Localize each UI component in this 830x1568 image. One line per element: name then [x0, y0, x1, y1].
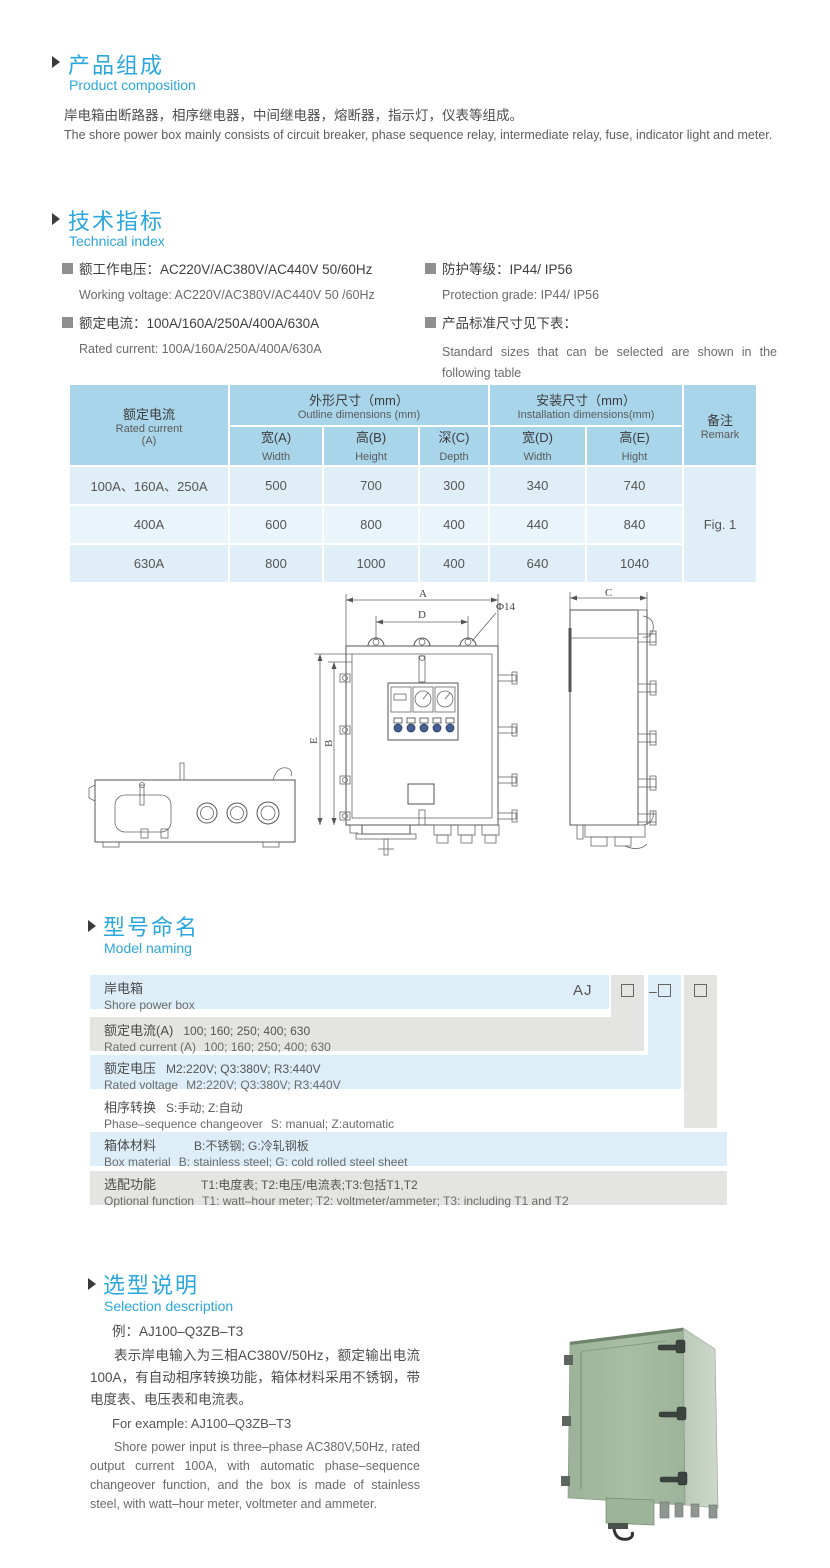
spec-cn-text: 额工作电压：AC220V/AC380V/AC440V 50/60Hz — [79, 258, 372, 278]
datasheet-page: 产品组成 Product composition 岸电箱由断路器，相序继电器，中… — [0, 0, 830, 1568]
selection-title-cn: 选型说明 — [103, 1268, 199, 1300]
spec-standard-sizes: 产品标准尺寸见下表： Standard sizes that can be se… — [425, 312, 777, 384]
table-row: 400A 600 800 400 440 840 — [69, 505, 757, 544]
table-subheader-height-b: 高(B)Height — [323, 426, 419, 466]
svg-text:D: D — [418, 609, 426, 621]
selection-example-cn: 例：AJ100–Q3ZB–T3 — [112, 1320, 243, 1340]
technical-title-cn: 技术指标 — [68, 204, 164, 236]
spec-en-text: Protection grade: IP44/ IP56 — [442, 288, 795, 302]
model-title-en: Model naming — [104, 940, 192, 956]
model-code-dash: – — [649, 983, 657, 999]
model-row-box-material: 箱体材料B:不锈钢; G:冷轧钢板 Box materialB: stainle… — [90, 1132, 727, 1166]
front-view-drawing: A D Φ14 E B — [300, 588, 590, 888]
spec-en-text: Standard sizes that can be selected are … — [442, 342, 777, 384]
table-header-remark: 备注 Remark — [683, 384, 757, 466]
model-naming-diagram: 岸电箱 Shore power box AJ – 额定电流(A)100; 160… — [90, 975, 727, 1205]
svg-text:B: B — [323, 740, 335, 747]
table-header-outline: 外形尺寸（mm） Outline dimensions (mm) — [229, 384, 489, 426]
composition-title-cn: 产品组成 — [68, 48, 164, 80]
table-row: 100A、160A、250A 500 700 300 340 740 Fig. … — [69, 466, 757, 505]
section-arrow-icon — [88, 1278, 96, 1290]
table-subheader-width-d: 宽(D)Width — [489, 426, 586, 466]
table-subheader-width-a: 宽(A)Width — [229, 426, 323, 466]
side-view-drawing: C — [555, 588, 715, 888]
svg-text:Φ14: Φ14 — [496, 601, 516, 613]
selection-title-en: Selection description — [104, 1298, 233, 1314]
remark-figure-cell: Fig. 1 — [683, 466, 757, 583]
model-title-cn: 型号命名 — [103, 910, 199, 942]
spec-rated-current: 额定电流：100A/160A/250A/400A/630A Rated curr… — [62, 312, 412, 356]
selection-body-en: Shore power input is three–phase AC380V,… — [90, 1438, 420, 1514]
composition-body-en: The shore power box mainly consists of c… — [64, 128, 794, 142]
product-photo — [548, 1292, 826, 1564]
model-row-phase-sequence: 相序转换S:手动; Z:自动 Phase–sequence changeover… — [90, 1094, 717, 1128]
model-code-box-3 — [694, 984, 707, 997]
section-arrow-icon — [52, 213, 60, 225]
section-arrow-icon — [88, 920, 96, 932]
spec-cn-text: 额定电流：100A/160A/250A/400A/630A — [79, 312, 319, 332]
technical-title-en: Technical index — [69, 233, 165, 249]
spec-cn-text: 产品标准尺寸见下表： — [442, 312, 577, 332]
square-bullet-icon — [62, 317, 73, 328]
square-bullet-icon — [425, 317, 436, 328]
table-subheader-height-e: 高(E)Hight — [586, 426, 683, 466]
table-header-rated-current: 额定电流 Rated current (A) — [69, 384, 229, 466]
table-row: 630A 800 1000 400 640 1040 — [69, 544, 757, 583]
table-subheader-depth-c: 深(C)Depth — [419, 426, 489, 466]
spec-working-voltage: 额工作电压：AC220V/AC380V/AC440V 50/60Hz Worki… — [62, 258, 412, 302]
square-bullet-icon — [62, 263, 73, 274]
spec-protection-grade: 防护等级：IP44/ IP56 Protection grade: IP44/ … — [425, 258, 795, 302]
model-row-optional-function: 选配功能T1:电度表; T2:电压/电流表;T3:包括T1,T2 Optiona… — [90, 1171, 727, 1205]
svg-text:A: A — [419, 588, 427, 600]
model-row-rated-current: 额定电流(A)100; 160; 250; 400; 630 Rated cur… — [90, 1017, 644, 1051]
spec-en-text: Rated current: 100A/160A/250A/400A/630A — [79, 342, 412, 356]
square-bullet-icon — [425, 263, 436, 274]
model-code-prefix: AJ — [573, 982, 593, 999]
selection-example-en: For example: AJ100–Q3ZB–T3 — [112, 1416, 291, 1431]
model-row-shore-power-box: 岸电箱 Shore power box — [90, 975, 609, 1009]
dimensions-table: 额定电流 Rated current (A) 外形尺寸（mm） Outline … — [68, 383, 758, 584]
model-code-box-1 — [621, 984, 634, 997]
selection-body-cn: 表示岸电输入为三相AC380V/50Hz，额定输出电流100A，有自动相序转换功… — [90, 1345, 420, 1411]
spec-en-text: Working voltage: AC220V/AC380V/AC440V 50… — [79, 288, 412, 302]
svg-text:E: E — [308, 737, 320, 744]
svg-text:C: C — [605, 588, 612, 599]
model-code-box-2 — [658, 984, 671, 997]
spec-cn-text: 防护等级：IP44/ IP56 — [442, 258, 573, 278]
bottom-view-drawing — [85, 745, 315, 860]
composition-body-cn: 岸电箱由断路器，相序继电器，中间继电器，熔断器，指示灯，仪表等组成。 — [64, 104, 784, 124]
section-arrow-icon — [52, 56, 60, 68]
composition-title-en: Product composition — [69, 77, 196, 93]
table-header-install: 安装尺寸（mm） Installation dimensions(mm) — [489, 384, 683, 426]
model-row-rated-voltage: 额定电压M2:220V; Q3:380V; R3:440V Rated volt… — [90, 1055, 681, 1089]
